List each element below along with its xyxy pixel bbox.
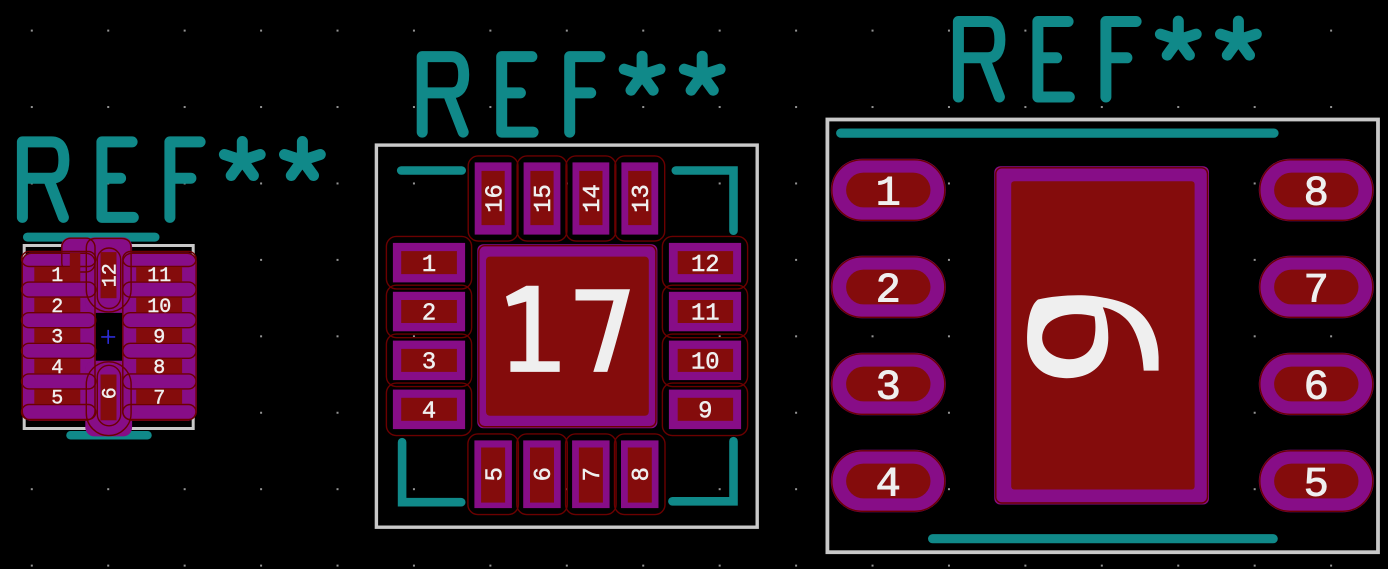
svg-text:9: 9 — [698, 399, 712, 426]
svg-text:7: 7 — [153, 388, 165, 411]
svg-text:6: 6 — [99, 387, 122, 399]
svg-text:2: 2 — [876, 267, 901, 315]
svg-text:8: 8 — [1304, 170, 1329, 218]
svg-text:3: 3 — [51, 326, 63, 349]
svg-text:9: 9 — [153, 326, 165, 349]
svg-text:5: 5 — [51, 388, 63, 411]
svg-text:3: 3 — [422, 350, 436, 377]
svg-text:14: 14 — [580, 184, 607, 213]
svg-text:4: 4 — [876, 461, 901, 509]
svg-text:16: 16 — [482, 184, 509, 213]
svg-text:4: 4 — [422, 399, 436, 426]
svg-text:10: 10 — [147, 296, 171, 319]
svg-text:1: 1 — [422, 252, 436, 279]
svg-text:12: 12 — [691, 252, 720, 279]
svg-text:6: 6 — [1304, 364, 1329, 412]
svg-text:2: 2 — [51, 296, 63, 319]
svg-text:1: 1 — [876, 170, 901, 218]
svg-text:11: 11 — [691, 301, 720, 328]
svg-text:13: 13 — [629, 184, 656, 213]
svg-text:11: 11 — [147, 265, 171, 288]
svg-text:2: 2 — [422, 301, 436, 328]
svg-text:1: 1 — [51, 265, 63, 288]
svg-text:8: 8 — [629, 467, 656, 481]
svg-text:4: 4 — [51, 357, 63, 380]
svg-text:10: 10 — [691, 350, 720, 377]
svg-text:5: 5 — [1304, 461, 1329, 509]
svg-text:8: 8 — [153, 357, 165, 380]
svg-text:6: 6 — [531, 467, 558, 481]
svg-text:7: 7 — [580, 467, 607, 481]
svg-text:12: 12 — [99, 263, 122, 287]
svg-text:3: 3 — [876, 364, 901, 412]
svg-text:7: 7 — [1304, 267, 1329, 315]
svg-text:5: 5 — [482, 467, 509, 481]
svg-text:15: 15 — [531, 184, 558, 213]
